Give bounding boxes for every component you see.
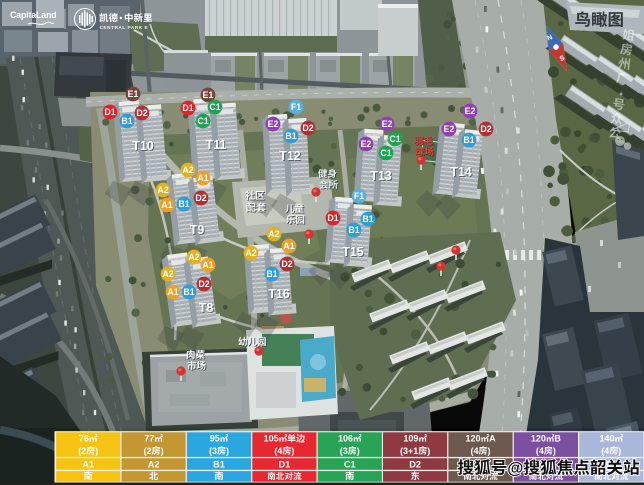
- svg-text:(3: (3: [340, 446, 348, 456]
- svg-text:): ): [618, 446, 621, 456]
- svg-text:): ): [95, 446, 98, 456]
- svg-text:105: 105: [264, 434, 279, 444]
- svg-text:D2: D2: [409, 459, 421, 469]
- svg-text:A1: A1: [82, 459, 94, 469]
- svg-text:76: 76: [79, 434, 89, 444]
- svg-text:): ): [226, 446, 229, 456]
- svg-text:95: 95: [210, 434, 220, 444]
- svg-text:120: 120: [531, 434, 546, 444]
- svg-text:(4: (4: [536, 446, 544, 456]
- svg-text:): ): [291, 446, 294, 456]
- svg-text:): ): [161, 446, 164, 456]
- svg-text:140: 140: [600, 434, 615, 444]
- svg-text:120: 120: [466, 434, 481, 444]
- svg-text:C1: C1: [344, 459, 356, 469]
- svg-text:@: @: [507, 459, 523, 478]
- svg-text:109: 109: [403, 434, 418, 444]
- svg-text:(3+1: (3+1: [400, 446, 418, 456]
- svg-text:CENTRAL PARK E: CENTRAL PARK E: [100, 25, 149, 30]
- svg-text:): ): [427, 446, 430, 456]
- svg-text:77: 77: [144, 434, 154, 444]
- svg-text:): ): [357, 446, 360, 456]
- svg-text:B: B: [554, 434, 561, 444]
- svg-text:): ): [553, 446, 556, 456]
- svg-text:): ): [488, 446, 491, 456]
- svg-text:(2: (2: [144, 446, 152, 456]
- svg-text:(2: (2: [78, 446, 86, 456]
- svg-text:(4: (4: [471, 446, 479, 456]
- svg-text:106: 106: [338, 434, 353, 444]
- svg-text:B1: B1: [213, 459, 225, 469]
- svg-text:(4: (4: [274, 446, 282, 456]
- svg-text:(4: (4: [601, 446, 609, 456]
- svg-text:D1: D1: [279, 459, 291, 469]
- svg-text:A2: A2: [148, 459, 160, 469]
- svg-text:(3: (3: [209, 446, 217, 456]
- svg-text:A: A: [489, 434, 496, 444]
- svg-text:CapitaLand: CapitaLand: [10, 10, 56, 20]
